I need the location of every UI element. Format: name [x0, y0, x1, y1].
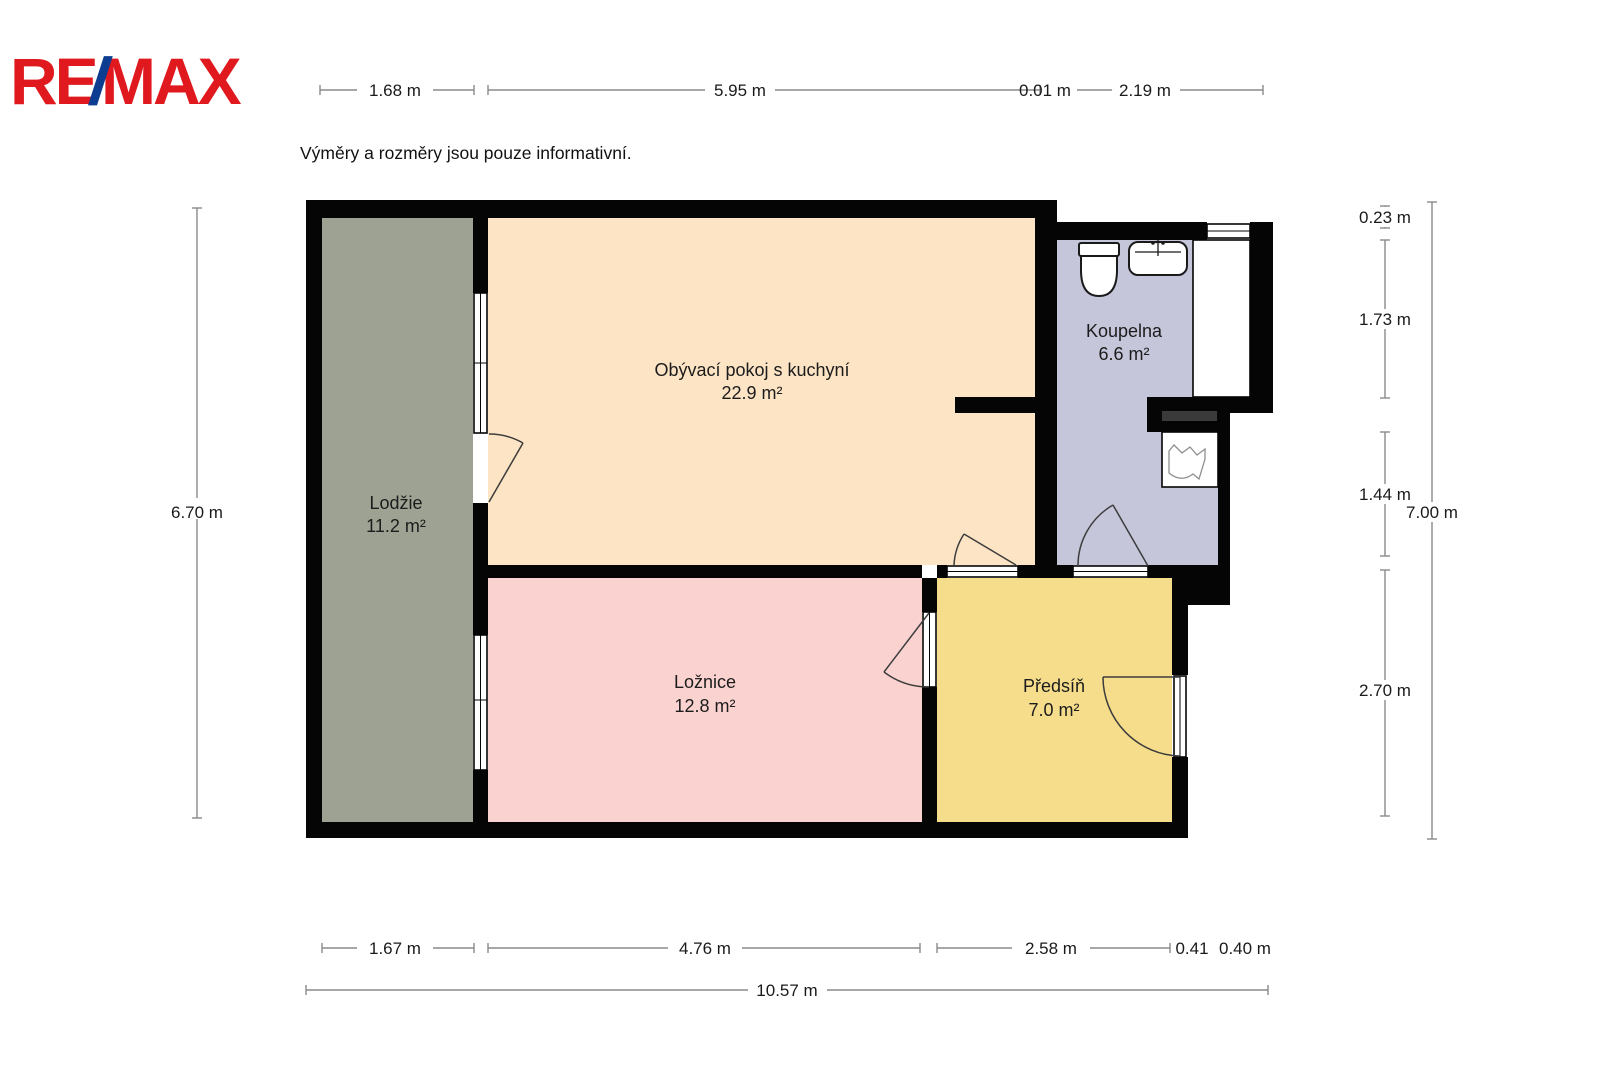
dim-bottom-3: 2.58 m — [1025, 939, 1077, 958]
doorway-loggia — [473, 434, 488, 502]
wall-stub — [955, 397, 1035, 413]
wall-loggia-divider — [473, 218, 488, 293]
wall-right-outer — [1250, 222, 1273, 413]
dim-left-total: 6.70 m — [171, 503, 223, 522]
floorplan-page: RE/MAX Výměry a rozměry jsou pouze infor… — [0, 0, 1600, 1066]
dim-top-2: 5.95 m — [714, 81, 766, 100]
vent-shaft — [1162, 411, 1217, 421]
room-label-bedroom: Ložnice — [674, 672, 736, 692]
dim-top-1: 1.68 m — [369, 81, 421, 100]
dim-top: 1.68 m 5.95 m 0.01 m 2.19 m — [320, 81, 1263, 100]
room-label-bathroom: Koupelna — [1086, 321, 1163, 341]
dim-top-4: 2.19 m — [1119, 81, 1171, 100]
dim-bottom: 1.67 m 4.76 m 2.58 m 0.41 0.40 m — [322, 939, 1271, 958]
room-area-bedroom: 12.8 m² — [674, 696, 735, 716]
wall-hall-right — [1172, 605, 1188, 675]
dim-top-3: 0.01 m — [1019, 81, 1071, 100]
room-label-loggia: Lodžie — [369, 493, 422, 513]
shower-niche — [1162, 432, 1218, 487]
room-area-loggia: 11.2 m² — [366, 516, 426, 536]
room-area-living: 22.9 m² — [721, 383, 782, 403]
dim-right-total: 7.00 m — [1400, 202, 1464, 839]
room-label-hall: Předsíň — [1023, 676, 1085, 696]
wall-living-bedroom — [473, 565, 922, 578]
wall-living-bathroom — [1035, 218, 1057, 578]
dim-right-1: 0.23 m — [1359, 208, 1411, 227]
dim-bottom-1: 1.67 m — [369, 939, 421, 958]
dim-bottom-total: 10.57 m — [306, 981, 1268, 1000]
room-label-living: Obývací pokoj s kuchyní — [654, 360, 849, 380]
dim-bottom-total: 10.57 m — [756, 981, 817, 1000]
room-area-bathroom: 6.6 m² — [1098, 344, 1149, 364]
dim-bottom-5: 0.40 m — [1219, 939, 1271, 958]
dim-bottom-2: 4.76 m — [679, 939, 731, 958]
room-area-hall: 7.0 m² — [1028, 700, 1079, 720]
dim-right-2: 1.73 m — [1359, 310, 1411, 329]
dim-left: 6.70 m — [163, 208, 231, 818]
dim-right-total: 7.00 m — [1406, 503, 1458, 522]
toilet-icon — [1079, 243, 1119, 256]
dim-bottom-4: 0.41 — [1175, 939, 1208, 958]
dim-right-3: 1.44 m — [1359, 485, 1411, 504]
dim-right-4: 2.70 m — [1359, 681, 1411, 700]
floor-plan: Obývací pokoj s kuchyní 22.9 m² Koupelna… — [0, 0, 1600, 1066]
shaft — [1193, 240, 1250, 397]
